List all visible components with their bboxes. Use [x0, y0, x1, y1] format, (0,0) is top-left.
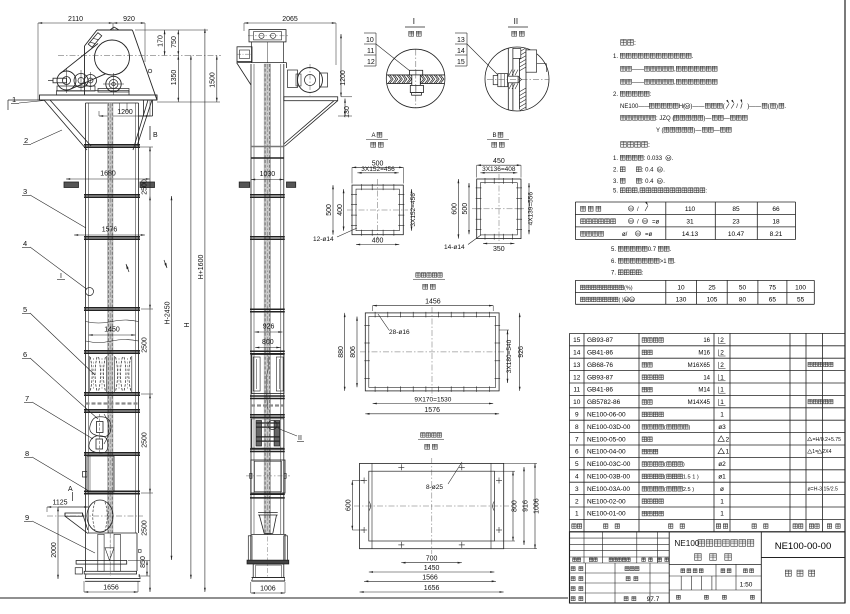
svg-text:3.: 3. — [613, 179, 618, 185]
svg-text:(: ( — [664, 425, 666, 431]
svg-text:2000: 2000 — [51, 542, 58, 558]
svg-text:10: 10 — [573, 399, 581, 406]
svg-text:97.7: 97.7 — [647, 596, 660, 603]
svg-text:600: 600 — [452, 203, 459, 215]
svg-text:NE100-04-00: NE100-04-00 — [587, 449, 626, 456]
svg-text:2500: 2500 — [142, 520, 149, 536]
svg-text:1: 1 — [720, 498, 724, 505]
svg-text::: : — [648, 142, 650, 149]
svg-text:II: II — [298, 435, 302, 442]
svg-text:NE100-03A-00: NE100-03A-00 — [587, 486, 630, 493]
svg-text:31: 31 — [686, 219, 694, 226]
svg-text:15: 15 — [457, 59, 465, 66]
svg-text:3: 3 — [575, 486, 579, 493]
svg-text:65: 65 — [769, 297, 777, 304]
svg-text:>1: >1 — [660, 259, 668, 265]
svg-text:M: M — [629, 219, 632, 224]
svg-text:M: M — [629, 206, 632, 211]
svg-text:5: 5 — [23, 305, 27, 314]
svg-text:B: B — [153, 132, 158, 139]
svg-text:920: 920 — [123, 16, 135, 23]
svg-text:( ): ( ) — [619, 298, 624, 304]
svg-text:6.: 6. — [611, 259, 616, 265]
svg-text:M: M — [658, 179, 661, 184]
svg-text:): ) — [776, 104, 778, 110]
svg-text:GB68-76: GB68-76 — [587, 362, 613, 369]
svg-text:(: ( — [664, 487, 666, 493]
svg-text:II: II — [514, 17, 518, 26]
svg-text:ø=H-3.15/2.5: ø=H-3.15/2.5 — [808, 486, 839, 492]
svg-text:1: 1 — [720, 412, 724, 419]
svg-text:: 0.4: : 0.4 — [642, 168, 654, 174]
svg-text:: 0.4: : 0.4 — [642, 179, 654, 185]
svg-text:14.13: 14.13 — [682, 231, 699, 238]
svg-text:1.5 1 ): 1.5 1 ) — [683, 475, 699, 481]
svg-text:NE100-03D-00: NE100-03D-00 — [587, 424, 631, 431]
svg-text:B: B — [493, 133, 497, 139]
svg-text::: : — [634, 40, 636, 47]
svg-text:5: 5 — [575, 461, 579, 468]
svg-text:NE100——: NE100—— — [620, 104, 650, 110]
svg-text:——: —— — [632, 80, 644, 86]
svg-text:2.: 2. — [613, 168, 618, 174]
svg-text:—: — — [724, 116, 730, 122]
svg-text:A: A — [372, 133, 376, 139]
svg-text:: 0.033: : 0.033 — [644, 156, 663, 162]
svg-text:ø3: ø3 — [718, 424, 726, 431]
svg-text:2500: 2500 — [142, 432, 149, 448]
svg-text:3X152=456: 3X152=456 — [361, 166, 395, 173]
svg-text:(: ( — [723, 104, 725, 110]
svg-text:H(: H( — [679, 104, 685, 110]
svg-text:1.: 1. — [613, 54, 618, 60]
svg-text:H+1600: H+1600 — [198, 255, 205, 280]
svg-text:1125: 1125 — [52, 500, 67, 507]
svg-text:850: 850 — [140, 556, 147, 568]
svg-text:1656: 1656 — [424, 585, 440, 592]
svg-text:GB41-86: GB41-86 — [587, 350, 613, 357]
svg-text:M: M — [643, 219, 646, 224]
svg-text:M16: M16 — [698, 351, 710, 357]
svg-text:12: 12 — [573, 374, 581, 381]
svg-text:4: 4 — [23, 239, 27, 248]
svg-text:1030: 1030 — [260, 171, 276, 178]
svg-text:1566: 1566 — [422, 574, 438, 581]
svg-text:55: 55 — [797, 297, 805, 304]
svg-text:NE100-05-00: NE100-05-00 — [587, 436, 626, 443]
svg-text:11: 11 — [367, 48, 374, 55]
svg-text:(: ( — [768, 104, 770, 110]
svg-text:NE100-00-00: NE100-00-00 — [775, 541, 832, 552]
svg-text:7: 7 — [25, 394, 29, 403]
svg-text:1450: 1450 — [424, 565, 440, 572]
svg-text:2500: 2500 — [142, 337, 149, 353]
svg-text:=ø: =ø — [652, 220, 660, 226]
svg-text:14: 14 — [457, 48, 465, 55]
svg-text:NE100-06-00: NE100-06-00 — [587, 412, 626, 419]
svg-text:400: 400 — [372, 237, 384, 244]
svg-text:I: I — [60, 273, 62, 280]
svg-text:2: 2 — [720, 337, 724, 344]
svg-text:1006: 1006 — [533, 498, 540, 514]
svg-text:14: 14 — [703, 375, 710, 381]
svg-text:(%): (%) — [624, 286, 633, 292]
svg-text:750: 750 — [171, 36, 178, 48]
svg-text:926: 926 — [518, 346, 525, 358]
svg-text:2: 2 — [726, 436, 730, 443]
svg-text:25: 25 — [708, 285, 716, 292]
svg-text:1680: 1680 — [100, 171, 116, 178]
svg-text:10.47: 10.47 — [728, 231, 745, 238]
svg-text:NE100-02-00: NE100-02-00 — [587, 498, 626, 505]
svg-text:2: 2 — [720, 362, 724, 369]
svg-text:926: 926 — [263, 324, 275, 331]
svg-text:1576: 1576 — [102, 227, 118, 234]
svg-text:2: 2 — [720, 350, 724, 357]
svg-text:3: 3 — [23, 187, 27, 196]
svg-text:1: 1 — [720, 511, 724, 518]
svg-text:)—: )— — [693, 128, 701, 134]
svg-text:M: M — [636, 231, 639, 236]
svg-text:4X139=556: 4X139=556 — [527, 192, 534, 226]
svg-text:1456: 1456 — [425, 299, 441, 306]
svg-text:M: M — [667, 156, 670, 161]
svg-text:14: 14 — [573, 350, 581, 357]
svg-text:2: 2 — [575, 498, 579, 505]
svg-text:8: 8 — [25, 449, 29, 458]
svg-text:12: 12 — [367, 59, 375, 66]
svg-text:9: 9 — [575, 412, 579, 419]
svg-text:450: 450 — [493, 158, 505, 165]
svg-text:12-ø14: 12-ø14 — [313, 236, 334, 243]
svg-text:(: ( — [664, 475, 666, 481]
svg-text:M: M — [686, 104, 689, 109]
svg-text:8.21: 8.21 — [770, 231, 783, 238]
svg-text:1.: 1. — [613, 156, 618, 162]
svg-text:ø2: ø2 — [718, 461, 726, 468]
svg-text:—: — — [714, 128, 720, 134]
svg-text:Y (: Y ( — [656, 128, 664, 134]
svg-text:6: 6 — [23, 350, 27, 359]
svg-text:): ) — [689, 425, 691, 431]
svg-text:11: 11 — [573, 387, 580, 394]
svg-text:1: 1 — [720, 399, 724, 406]
svg-text:4: 4 — [575, 474, 579, 481]
svg-text:18: 18 — [772, 219, 780, 226]
svg-text:170: 170 — [157, 35, 164, 47]
svg-text:2110: 2110 — [68, 16, 83, 23]
svg-text:7: 7 — [575, 436, 579, 443]
svg-text:M: M — [658, 167, 661, 172]
svg-text:H-2450: H-2450 — [165, 301, 172, 324]
svg-text:600: 600 — [346, 499, 353, 511]
svg-text:H: H — [184, 322, 191, 327]
svg-text:3X180=540: 3X180=540 — [506, 339, 513, 373]
svg-text:500: 500 — [326, 204, 333, 216]
svg-text:1350: 1350 — [171, 70, 178, 86]
svg-text:3X136=408: 3X136=408 — [482, 166, 516, 173]
svg-text:10: 10 — [366, 37, 374, 44]
svg-text:GB5782-86: GB5782-86 — [587, 399, 621, 406]
svg-text:GB41-86: GB41-86 — [587, 387, 613, 394]
svg-text:2: 2 — [24, 136, 28, 145]
svg-text:): ) — [683, 462, 685, 468]
svg-text:8-ø25: 8-ø25 — [426, 484, 443, 491]
svg-text:1: 1 — [720, 387, 724, 394]
svg-text:806: 806 — [350, 346, 357, 358]
svg-text:880: 880 — [338, 346, 345, 358]
svg-text:1200: 1200 — [340, 70, 347, 86]
svg-text:GB93-87: GB93-87 — [587, 337, 613, 344]
svg-text:500: 500 — [462, 203, 469, 215]
svg-text:M16X65: M16X65 — [688, 363, 711, 369]
svg-text:105: 105 — [707, 297, 718, 304]
svg-text:M: M — [625, 297, 628, 302]
svg-text:16: 16 — [703, 338, 710, 344]
svg-text:75: 75 — [769, 285, 777, 292]
svg-text:ø: ø — [720, 486, 724, 493]
svg-text:350: 350 — [493, 246, 505, 253]
svg-text:ø1: ø1 — [718, 474, 726, 481]
svg-text:1: 1 — [726, 449, 730, 456]
svg-text:916: 916 — [522, 500, 529, 512]
svg-text:8: 8 — [575, 424, 579, 431]
svg-text:1576: 1576 — [424, 407, 440, 414]
svg-text:)——: )—— — [690, 104, 704, 110]
svg-text:9: 9 — [25, 513, 29, 522]
svg-text:2.: 2. — [613, 92, 618, 98]
svg-text:23: 23 — [732, 219, 740, 226]
svg-text:1:50: 1:50 — [740, 582, 753, 589]
svg-text:50: 50 — [739, 285, 747, 292]
svg-text:800: 800 — [511, 500, 518, 512]
svg-text:100: 100 — [795, 285, 806, 292]
svg-text:)—: )— — [703, 116, 711, 122]
svg-text:5.: 5. — [613, 189, 618, 195]
svg-text:M14X45: M14X45 — [688, 400, 711, 406]
svg-text:15: 15 — [573, 337, 581, 344]
svg-text:85: 85 — [732, 206, 740, 213]
svg-text:14-ø14: 14-ø14 — [444, 244, 465, 251]
svg-text:110: 110 — [685, 206, 696, 213]
svg-text:GB93-87: GB93-87 — [587, 374, 613, 381]
svg-text:M14: M14 — [698, 388, 710, 394]
svg-text:7.: 7. — [611, 271, 616, 277]
svg-text:)——: )—— — [747, 104, 761, 110]
svg-text:13: 13 — [573, 362, 581, 369]
svg-text:80: 80 — [739, 297, 747, 304]
svg-text:NE100-03C-00: NE100-03C-00 — [587, 461, 631, 468]
svg-text:1: 1 — [575, 511, 579, 518]
svg-text:800: 800 — [262, 339, 274, 346]
svg-text:5.: 5. — [611, 247, 616, 253]
svg-text:10: 10 — [677, 285, 685, 292]
svg-text:2X4: 2X4 — [822, 449, 831, 455]
svg-text:130: 130 — [676, 297, 687, 304]
svg-text:6: 6 — [575, 449, 579, 456]
svg-text:=ø: =ø — [645, 232, 653, 238]
svg-text:ø/: ø/ — [622, 232, 628, 238]
svg-text:NE100-01-00: NE100-01-00 — [587, 511, 626, 518]
svg-text:I: I — [413, 17, 415, 26]
svg-text:2065: 2065 — [282, 16, 298, 23]
svg-text:M: M — [630, 297, 633, 302]
svg-text:NE100-03B-00: NE100-03B-00 — [587, 474, 630, 481]
svg-text:1500: 1500 — [210, 72, 217, 88]
svg-text:400: 400 — [337, 204, 344, 216]
svg-text:2500: 2500 — [142, 179, 149, 195]
svg-text:1656: 1656 — [103, 585, 119, 592]
svg-text:1: 1 — [720, 374, 724, 381]
svg-text:1: 1 — [12, 95, 16, 104]
svg-text:0.7: 0.7 — [648, 247, 657, 253]
svg-text:28-ø16: 28-ø16 — [389, 329, 410, 336]
svg-text:A: A — [68, 486, 73, 493]
svg-text:NE100: NE100 — [674, 539, 699, 548]
svg-text:13: 13 — [457, 37, 465, 44]
svg-text:——: —— — [632, 67, 644, 73]
svg-text:66: 66 — [772, 206, 780, 213]
svg-text:=H/0.2+5.75: =H/0.2+5.75 — [813, 437, 842, 443]
svg-text:2.5 ): 2.5 ) — [683, 487, 694, 493]
svg-text:(: ( — [664, 462, 666, 468]
svg-text:1006: 1006 — [260, 586, 276, 593]
svg-text:: JZQ (: : JZQ ( — [656, 116, 674, 122]
svg-text:3X152=456: 3X152=456 — [410, 193, 417, 227]
svg-text:1450: 1450 — [104, 327, 120, 334]
svg-text:700: 700 — [426, 556, 438, 563]
svg-text:1=: 1= — [812, 449, 818, 455]
svg-text:9X170=1530: 9X170=1530 — [414, 397, 451, 404]
